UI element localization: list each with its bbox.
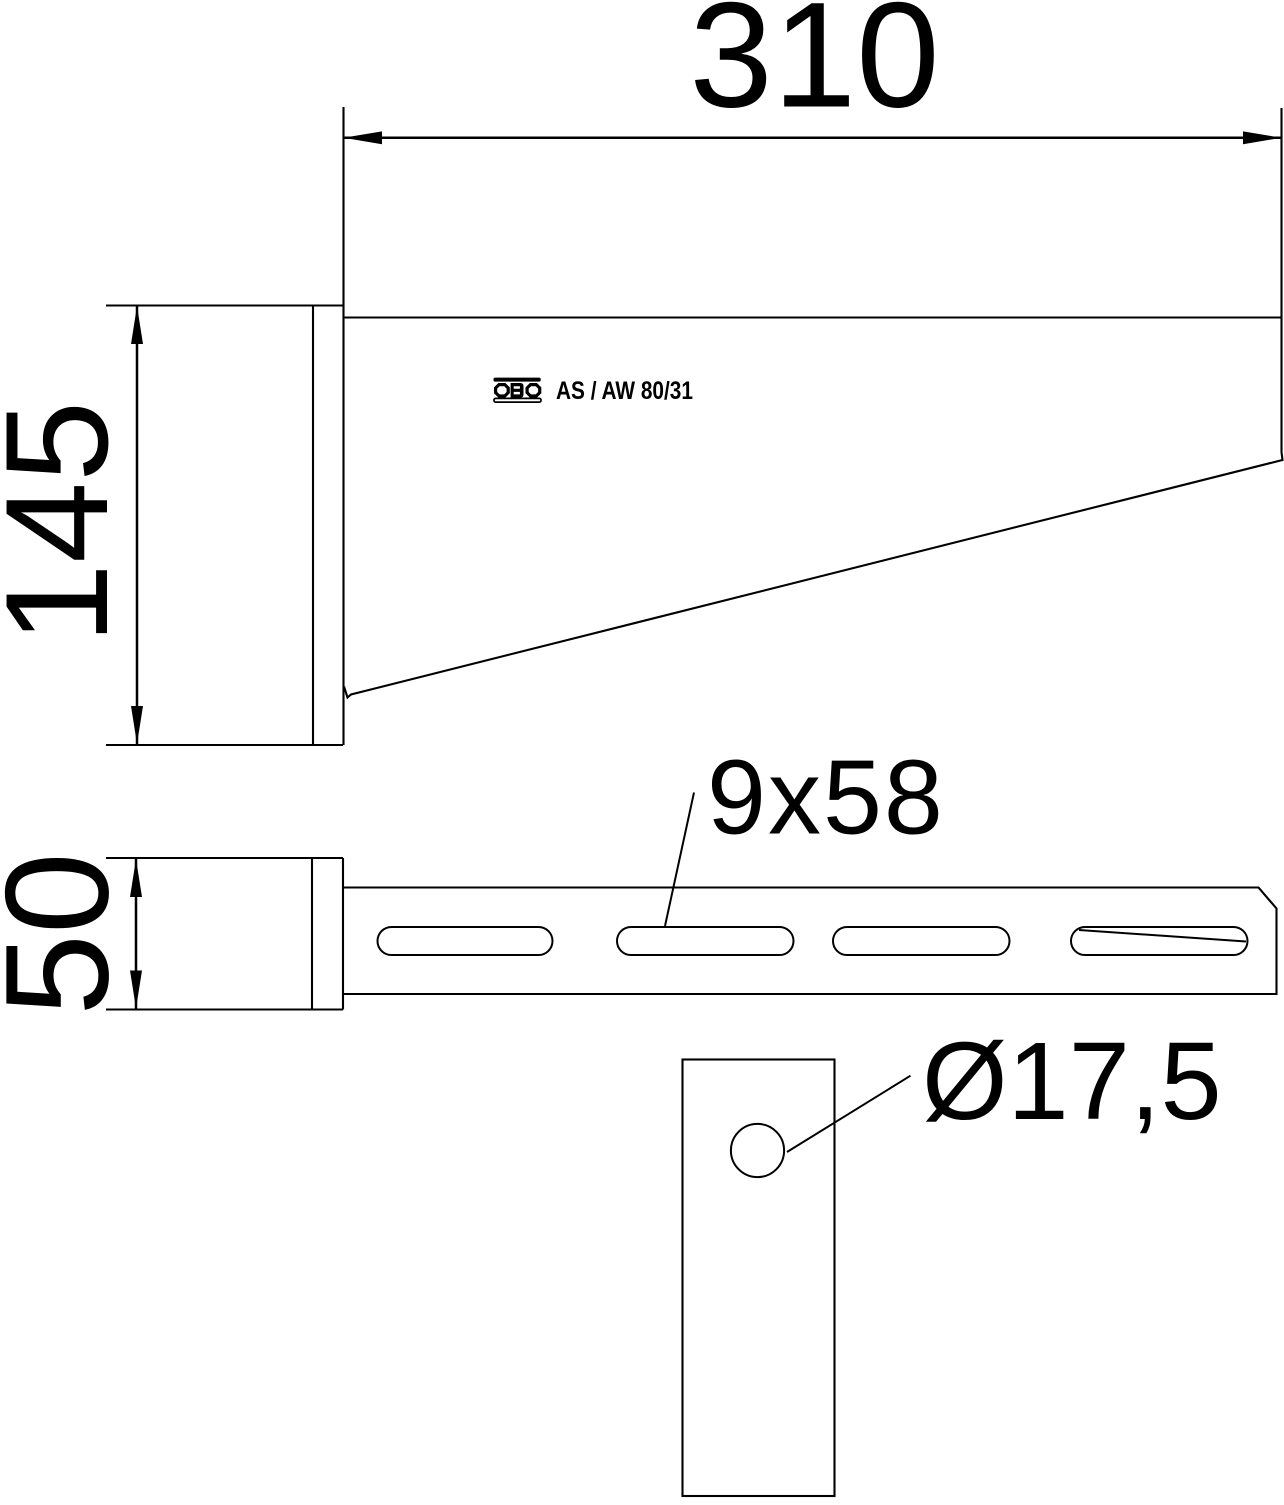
svg-text:Ø17,5: Ø17,5 <box>922 1020 1222 1143</box>
svg-text:50: 50 <box>0 852 140 1016</box>
svg-text:145: 145 <box>0 401 138 645</box>
svg-text:AS / AW 80/31: AS / AW 80/31 <box>556 376 693 404</box>
svg-text:9x58: 9x58 <box>707 739 945 857</box>
svg-text:310: 310 <box>689 0 939 139</box>
